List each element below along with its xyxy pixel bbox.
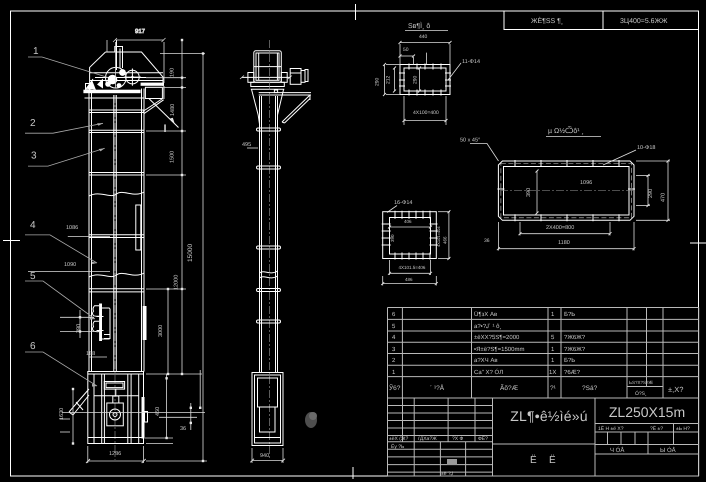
svg-text:±Ь Н?: ±Ь Н? — [676, 426, 690, 432]
svg-text:3: 3 — [31, 151, 37, 162]
svg-text:ФЁ?: ФЁ? — [478, 435, 488, 442]
svg-text:ZL¶•ê½ìé»ú: ZL¶•ê½ìé»ú — [510, 408, 587, 424]
svg-text:1086: 1086 — [66, 225, 78, 231]
svg-text:1180: 1180 — [558, 240, 570, 246]
svg-text:±ёХX?5Ѕ¶=2000: ±ёХX?5Ѕ¶=2000 — [474, 334, 520, 341]
svg-text:11-Φ14: 11-Φ14 — [462, 59, 480, 65]
svg-text:4X101.5=406: 4X101.5=406 — [399, 265, 426, 270]
svg-text:470: 470 — [661, 193, 667, 202]
svg-text:1630: 1630 — [59, 408, 65, 420]
svg-text:212: 212 — [386, 75, 392, 84]
svg-text:486: 486 — [405, 277, 413, 282]
svg-text:?6Æ?: ?6Æ? — [564, 369, 581, 376]
svg-text:6: 6 — [30, 341, 36, 352]
svg-text:Са" Х? ÓЛ: Са" Х? ÓЛ — [474, 368, 503, 376]
svg-text:±,Х?: ±,Х? — [668, 385, 683, 394]
svg-text:?Ж6Ж?: ?Ж6Ж? — [564, 334, 586, 341]
svg-text:450: 450 — [155, 407, 161, 416]
svg-text:Ё: Ё — [530, 454, 537, 466]
svg-text:2: 2 — [30, 118, 36, 129]
svg-text:Ѕв¶Ì¸ ô: Ѕв¶Ì¸ ô — [408, 21, 430, 30]
svg-text:Ч ÓÅ: Ч ÓÅ — [610, 446, 624, 454]
svg-text:ѓДХа?Ж: ѓДХа?Ж — [418, 436, 437, 442]
svg-text:36: 36 — [484, 238, 490, 244]
svg-text:•Я±ё?Ѕ¶=1500mm: •Я±ё?Ѕ¶=1500mm — [474, 346, 524, 353]
svg-text:188: 188 — [86, 351, 95, 357]
svg-text:ЬЅ?X?Ѕ?Æ: ЬЅ?X?Ѕ?Æ — [629, 380, 653, 385]
svg-text:3Ц400=5.6ЖЖ: 3Ц400=5.6ЖЖ — [620, 18, 668, 25]
svg-text:406: 406 — [404, 219, 412, 224]
svg-text:?Ё ±?: ?Ё ±? — [650, 425, 663, 432]
svg-text:5: 5 — [30, 271, 36, 282]
svg-text:290: 290 — [375, 77, 381, 86]
svg-text:4X100=400: 4X100=400 — [413, 110, 439, 116]
svg-text:10-Φ18: 10-Φ18 — [637, 145, 655, 151]
svg-text:390: 390 — [390, 234, 395, 242]
svg-text:440: 440 — [419, 34, 428, 40]
svg-text:1286: 1286 — [109, 451, 121, 457]
svg-text:2X400=800: 2X400=800 — [546, 225, 574, 231]
svg-text:ZL250X15m: ZL250X15m — [609, 404, 685, 420]
svg-text:390: 390 — [76, 324, 82, 333]
svg-text:Ё: Ё — [549, 454, 556, 466]
svg-text:?Х Ф: ?Х Ф — [452, 436, 464, 442]
svg-text:12000: 12000 — [174, 275, 180, 290]
svg-text:Ў6?: Ў6? — [389, 384, 401, 392]
svg-text:?¹: ?¹ — [550, 385, 557, 392]
svg-text:ЖÈ¶ЅS ¶¸: ЖÈ¶ЅS ¶¸ — [531, 16, 563, 25]
svg-text:1500: 1500 — [170, 151, 176, 163]
svg-text:390: 390 — [526, 188, 532, 197]
svg-text:190: 190 — [170, 68, 176, 77]
svg-text:1480: 1480 — [170, 104, 176, 116]
svg-text:15000: 15000 — [187, 244, 194, 262]
svg-text:940: 940 — [260, 453, 269, 459]
svg-text:466: 466 — [443, 236, 448, 244]
svg-text:Ü¶зХ Ав: Ü¶зХ Ав — [474, 310, 497, 318]
svg-text:а?ХЧ Ав: а?ХЧ Ав — [474, 357, 498, 364]
svg-text:36: 36 — [180, 426, 186, 432]
svg-text:3000: 3000 — [158, 325, 164, 337]
svg-text:´ ¹?Å: ´ ¹?Å — [430, 384, 445, 392]
svg-text:917: 917 — [135, 28, 146, 35]
svg-text:?Ѕá?: ?Ѕá? — [582, 385, 598, 392]
svg-text:50 x 45°: 50 x 45° — [460, 138, 480, 144]
svg-text:1Ё Н ±ё Х?: 1Ё Н ±ё Х? — [598, 425, 624, 432]
svg-text:Ãõ?Æ: Ãõ?Æ — [500, 384, 519, 392]
svg-text:4: 4 — [30, 220, 36, 231]
svg-text:1090: 1090 — [64, 262, 76, 268]
svg-text:Ы ÓÅ: Ы ÓÅ — [660, 446, 676, 454]
svg-text:290: 290 — [413, 75, 419, 84]
svg-text:Ó?Ѕ¸: Ó?Ѕ¸ — [635, 390, 647, 397]
svg-text:1X: 1X — [549, 369, 556, 376]
svg-text:±ё ?Ꭻ: ±ё ?Ꭻ — [441, 471, 453, 477]
svg-text:4X101=404: 4X101=404 — [436, 226, 441, 247]
svg-text:1: 1 — [33, 46, 39, 57]
svg-text:?Ж6Ж?: ?Ж6Ж? — [564, 346, 586, 353]
svg-text:±ёХ (Ж?: ±ёХ (Ж? — [389, 436, 409, 442]
svg-text:Б?Ь: Б?Ь — [564, 357, 575, 364]
svg-text:1096: 1096 — [580, 180, 592, 186]
svg-text:290: 290 — [648, 189, 654, 198]
svg-text:Б?Ь: Б?Ь — [564, 311, 575, 318]
svg-text:495: 495 — [242, 142, 251, 148]
svg-text:а?•?Ꭻ´ ¹ ô¸: а?•?Ꭻ´ ¹ ô¸ — [474, 323, 501, 330]
svg-text:µ Ω½Ѽô¹ ¸: µ Ω½Ѽô¹ ¸ — [548, 126, 584, 135]
svg-text:16-Φ14: 16-Φ14 — [394, 200, 412, 206]
svg-text:Ёу ?Ь: Ёу ?Ь — [391, 443, 405, 450]
svg-text:I: I — [164, 123, 167, 135]
svg-text:50: 50 — [403, 47, 409, 53]
